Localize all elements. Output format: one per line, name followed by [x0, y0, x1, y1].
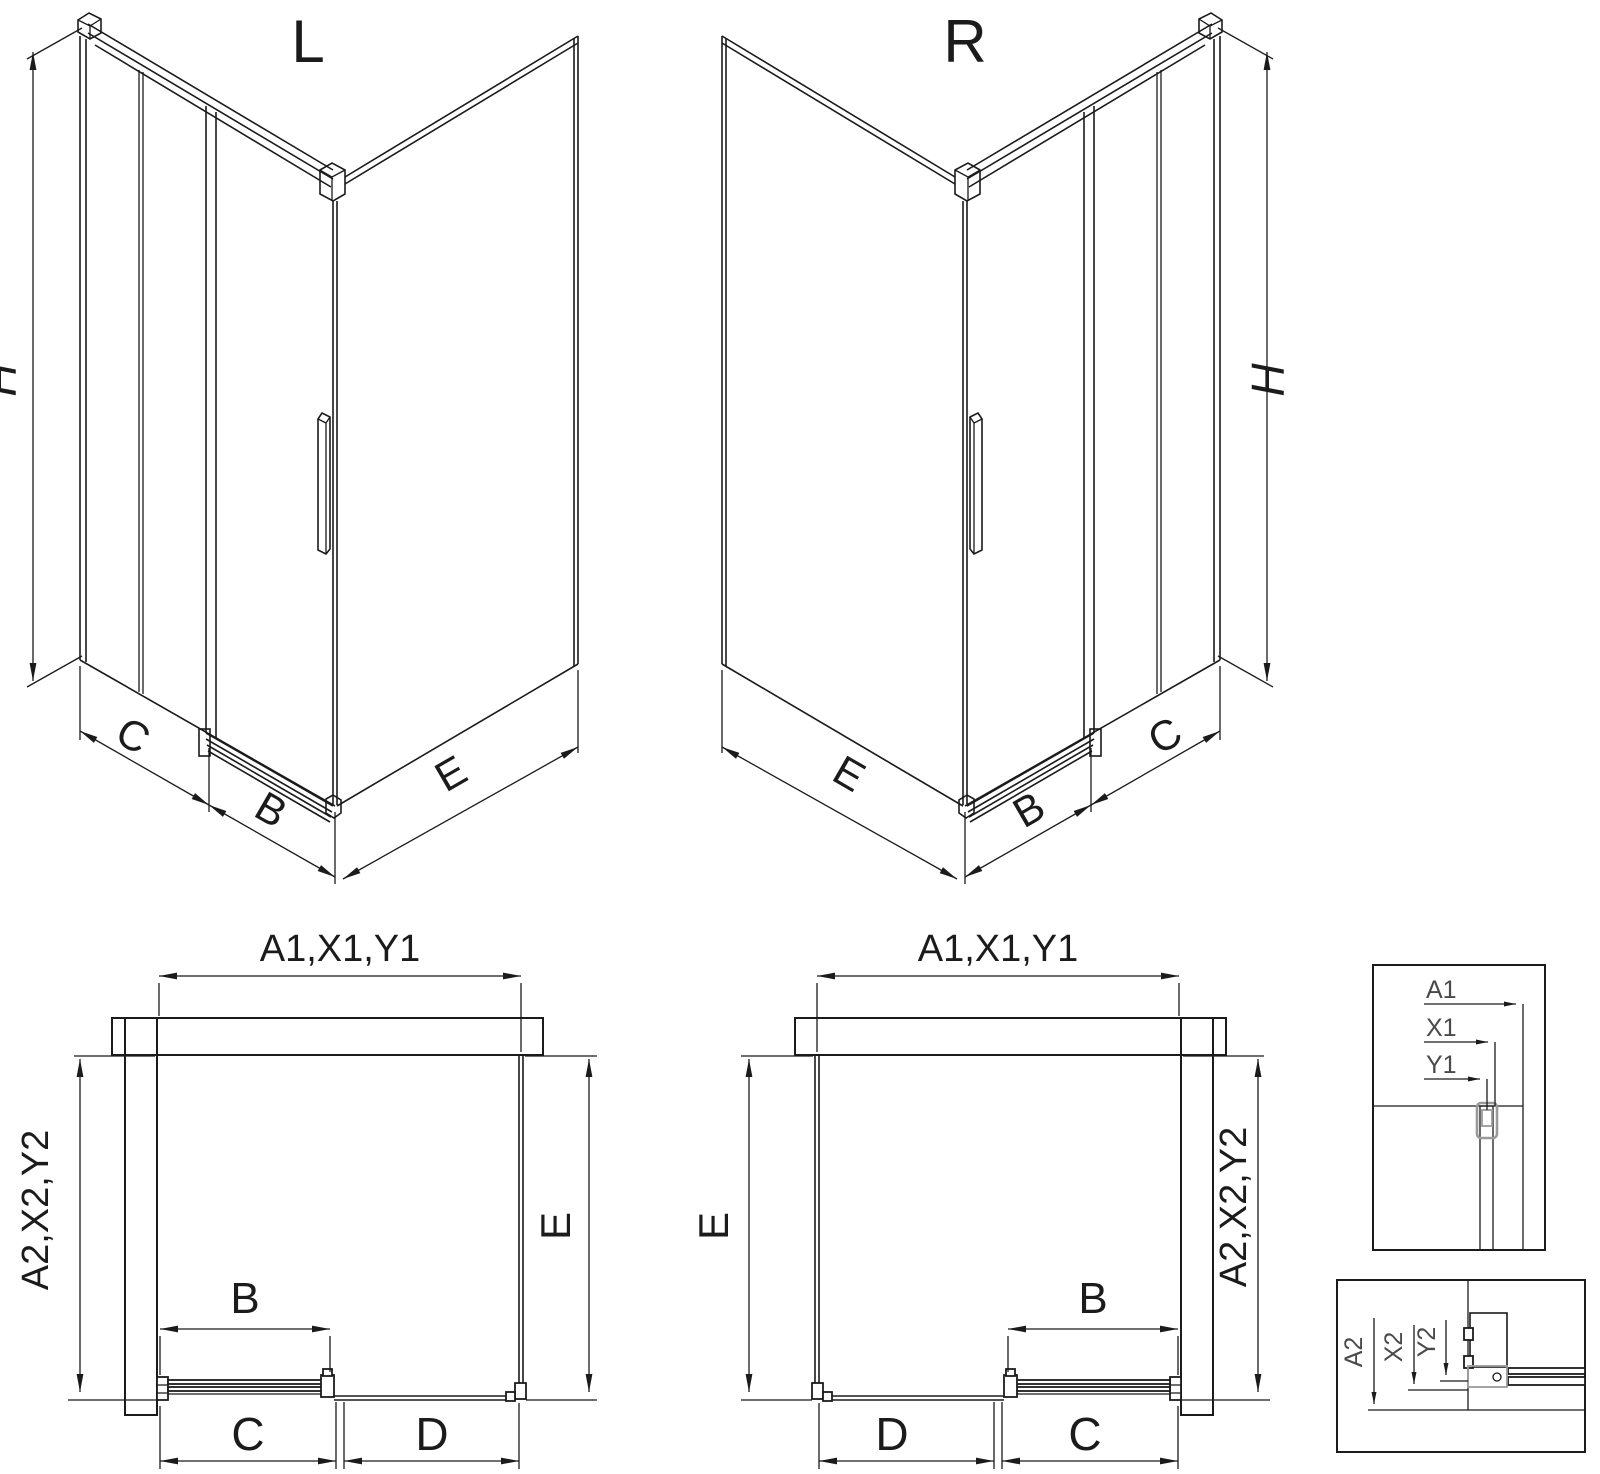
dim-label-c-left-iso: C [108, 708, 158, 764]
dim-label-a2-left-plan: A2,X2,Y2 [15, 1130, 57, 1291]
detail-box-bottom: A2 X2 Y2 [1337, 1280, 1585, 1452]
dim-label-a1-left-plan: A1,X1,Y1 [260, 928, 421, 970]
detail-label-y1: Y1 [1426, 1051, 1457, 1079]
plan-view-left: A1,X1,Y1 A2,X2,Y2 E B C D [15, 928, 597, 1469]
technical-drawing-canvas: L H C B E R H E B C A1,X1,Y1 A2,X2,Y2 E … [0, 0, 1600, 1474]
view-title-left: L [291, 8, 324, 75]
track-rail [1508, 1368, 1585, 1374]
technical-drawing-page: L H C B E R H E B C A1,X1,Y1 A2,X2,Y2 E … [0, 0, 1600, 1474]
detail-label-x2: X2 [1380, 1332, 1408, 1363]
wall-side-right-plan [1181, 1018, 1213, 1415]
dim-label-b-right-plan: B [1078, 1274, 1107, 1323]
detail-box-top: A1 X1 Y1 [1373, 965, 1545, 1250]
detail-label-y2: Y2 [1413, 1327, 1441, 1358]
dim-label-d-left-plan: D [415, 1408, 448, 1460]
view-title-right: R [943, 8, 986, 75]
roller-bracket-icon [1470, 1313, 1507, 1367]
dim-label-b-right-iso: B [1005, 782, 1053, 837]
dim-label-d-right-plan: D [875, 1408, 908, 1460]
dim-label-b-left-plan: B [230, 1274, 259, 1323]
dim-label-h-left: H [0, 363, 26, 397]
dim-label-e-right-plan: E [690, 1212, 737, 1240]
wall-top-left-plan [112, 1018, 543, 1055]
detail-label-x1: X1 [1426, 1014, 1457, 1042]
plan-view-right: A1,X1,Y1 E A2,X2,Y2 B D C [690, 928, 1270, 1469]
detail-label-a2: A2 [1340, 1337, 1368, 1368]
wall-side-left-plan [125, 1018, 157, 1415]
dim-label-h-right: H [1242, 363, 1294, 397]
dim-label-e-left-iso: E [427, 746, 475, 801]
dim-label-e-right-iso: E [825, 746, 873, 801]
iso-view-left: L H C B E [0, 8, 578, 884]
dim-label-c-right-iso: C [1140, 708, 1190, 764]
glass-section-hatch [1480, 1106, 1493, 1250]
dim-label-c-left-plan: C [231, 1408, 264, 1460]
dim-label-b-left-iso: B [247, 782, 295, 837]
dim-label-a2-right-plan: A2,X2,Y2 [1213, 1127, 1255, 1288]
track-rail [1508, 1377, 1585, 1385]
dim-label-a1-right-plan: A1,X1,Y1 [918, 928, 1079, 970]
iso-view-right: R H E B C [722, 8, 1294, 884]
dim-label-e-left-plan: E [532, 1212, 579, 1240]
dim-label-c-right-plan: C [1068, 1408, 1101, 1460]
detail-label-a1: A1 [1426, 976, 1457, 1004]
wall-top-right-plan [795, 1018, 1226, 1055]
